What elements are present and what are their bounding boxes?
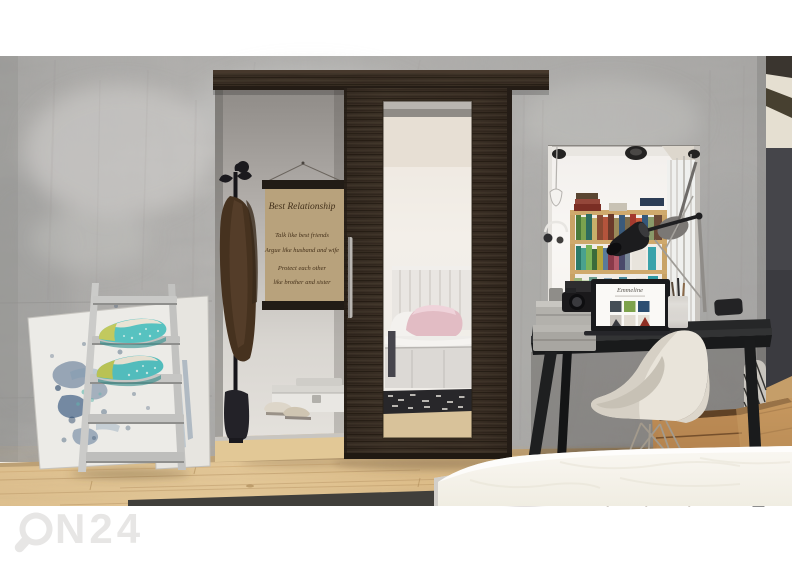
- svg-text:Emmeline: Emmeline: [616, 287, 643, 294]
- svg-text:Argue like husband and wife: Argue like husband and wife: [264, 247, 339, 254]
- svg-text:like brother and sister: like brother and sister: [273, 279, 331, 286]
- svg-text:Protect each other: Protect each other: [277, 265, 327, 272]
- svg-text:Best Relationship: Best Relationship: [269, 202, 336, 212]
- svg-text:Talk like best friends: Talk like best friends: [275, 232, 329, 239]
- svg-text:N24: N24: [55, 505, 144, 552]
